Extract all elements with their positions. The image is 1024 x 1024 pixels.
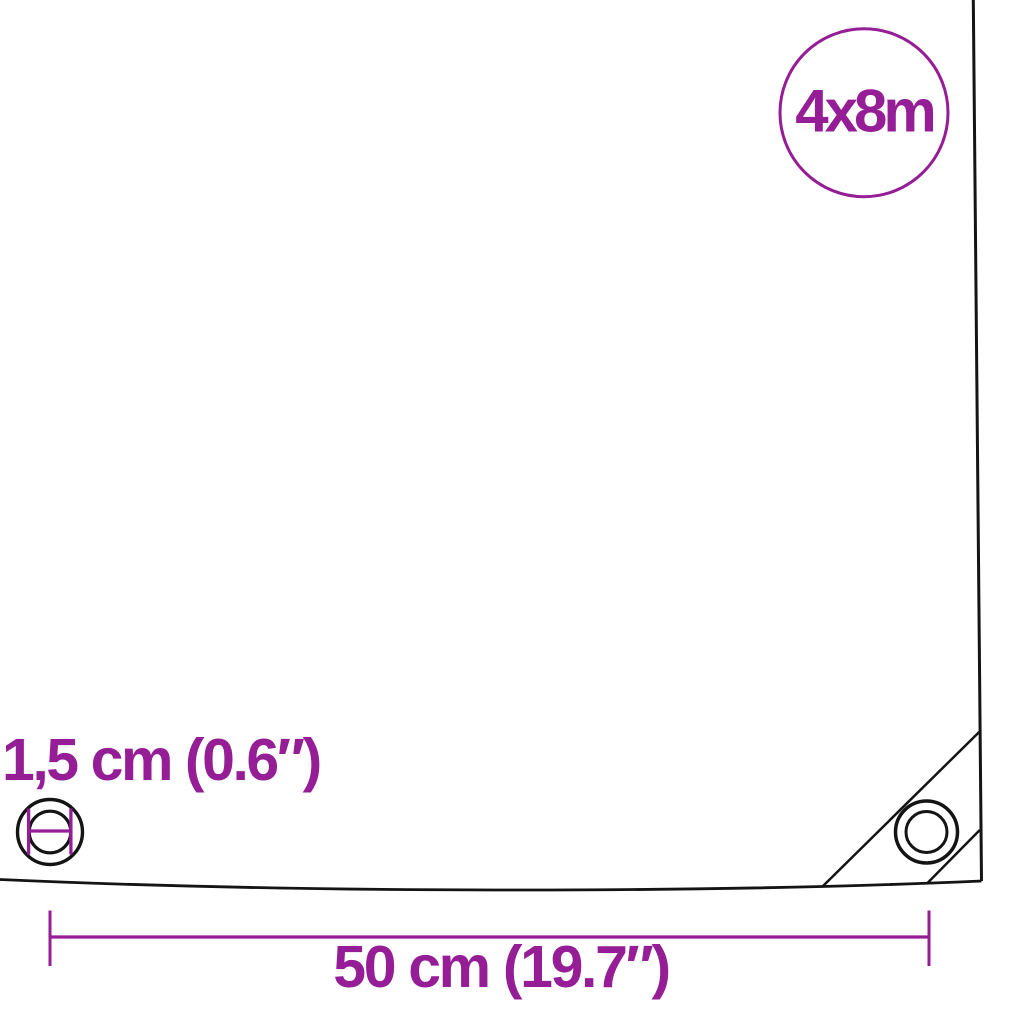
svg-text:4x8m: 4x8m bbox=[795, 78, 933, 145]
svg-text:1,5 cm (0.6″): 1,5 cm (0.6″) bbox=[2, 727, 320, 793]
svg-text:50 cm (19.7″): 50 cm (19.7″) bbox=[333, 934, 669, 1000]
